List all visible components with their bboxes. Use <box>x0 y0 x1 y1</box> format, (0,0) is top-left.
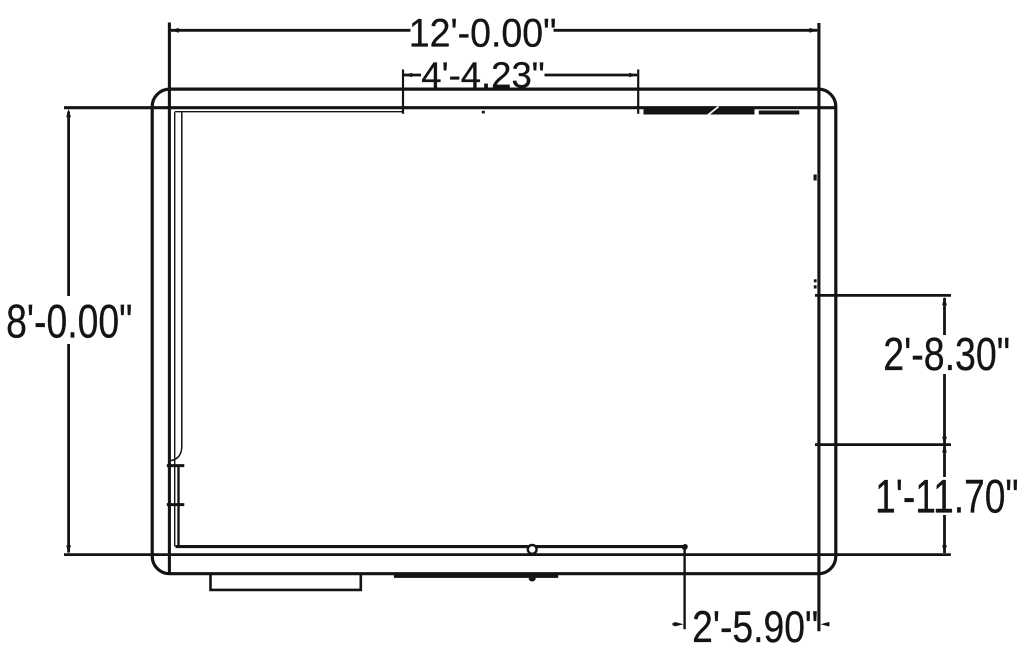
svg-text:2'-8.30": 2'-8.30" <box>883 329 1010 380</box>
svg-text:12'-0.00": 12'-0.00" <box>409 11 557 55</box>
svg-text:1'-11.70": 1'-11.70" <box>875 470 1018 522</box>
svg-text:8'-0.00": 8'-0.00" <box>6 295 132 348</box>
svg-text:2'-5.90": 2'-5.90" <box>692 602 818 652</box>
svg-text:4'-4.23": 4'-4.23" <box>421 54 544 95</box>
